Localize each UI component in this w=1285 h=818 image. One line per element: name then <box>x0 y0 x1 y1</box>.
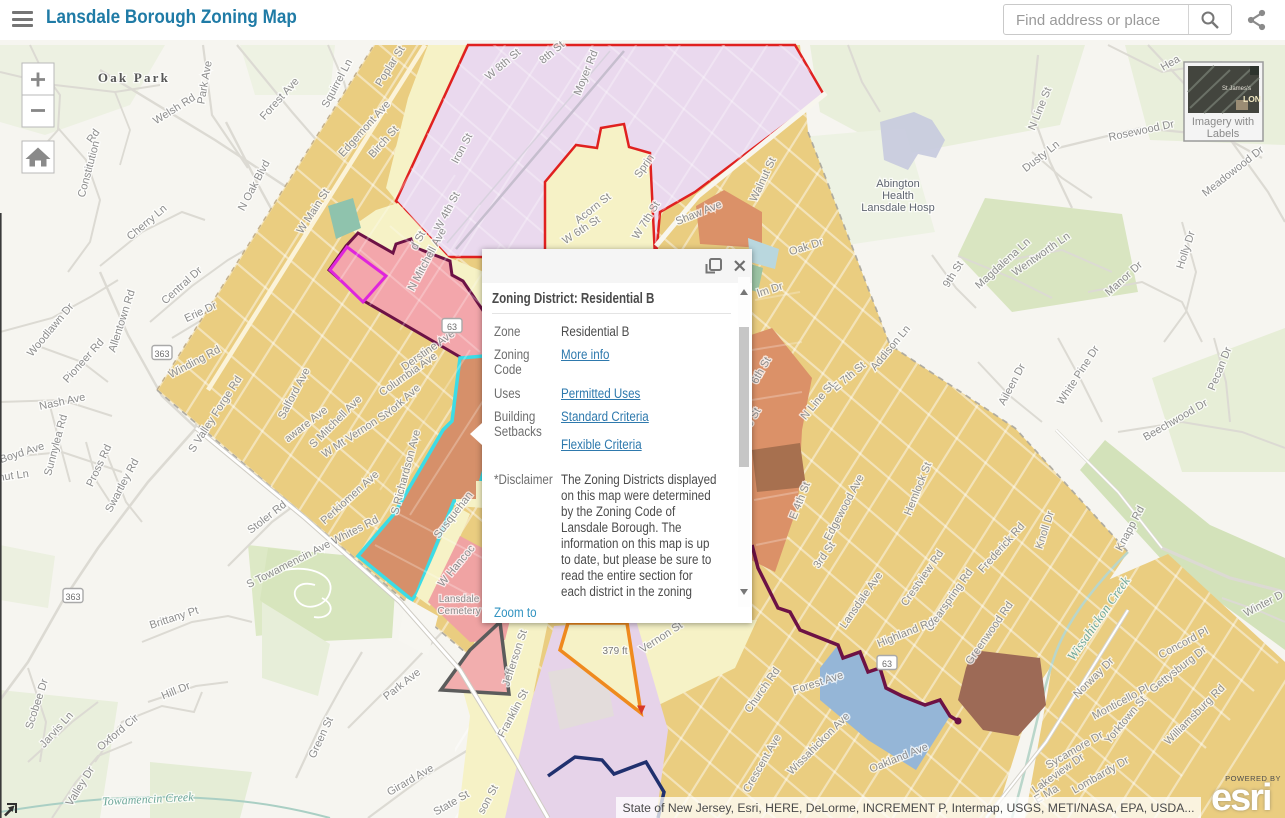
svg-text:Abington: Abington <box>876 178 919 190</box>
svg-text:Health: Health <box>882 190 914 202</box>
svg-text:Lansdale Hosp: Lansdale Hosp <box>861 202 934 214</box>
svg-text:Labels: Labels <box>1207 128 1240 140</box>
svg-text:Lansdale: Lansdale <box>439 594 480 605</box>
svg-text:379 ft: 379 ft <box>602 646 627 657</box>
svg-text:Oak Park: Oak Park <box>98 70 170 85</box>
svg-text:363: 363 <box>65 592 80 602</box>
svg-text:63: 63 <box>447 322 457 332</box>
svg-text:363: 363 <box>154 349 169 359</box>
svg-text:St James's: St James's <box>1222 86 1251 92</box>
svg-text:Imagery with: Imagery with <box>1192 116 1254 128</box>
svg-text:Cemetery: Cemetery <box>437 606 480 617</box>
svg-text:63: 63 <box>882 659 892 669</box>
svg-text:LON: LON <box>1243 94 1261 104</box>
